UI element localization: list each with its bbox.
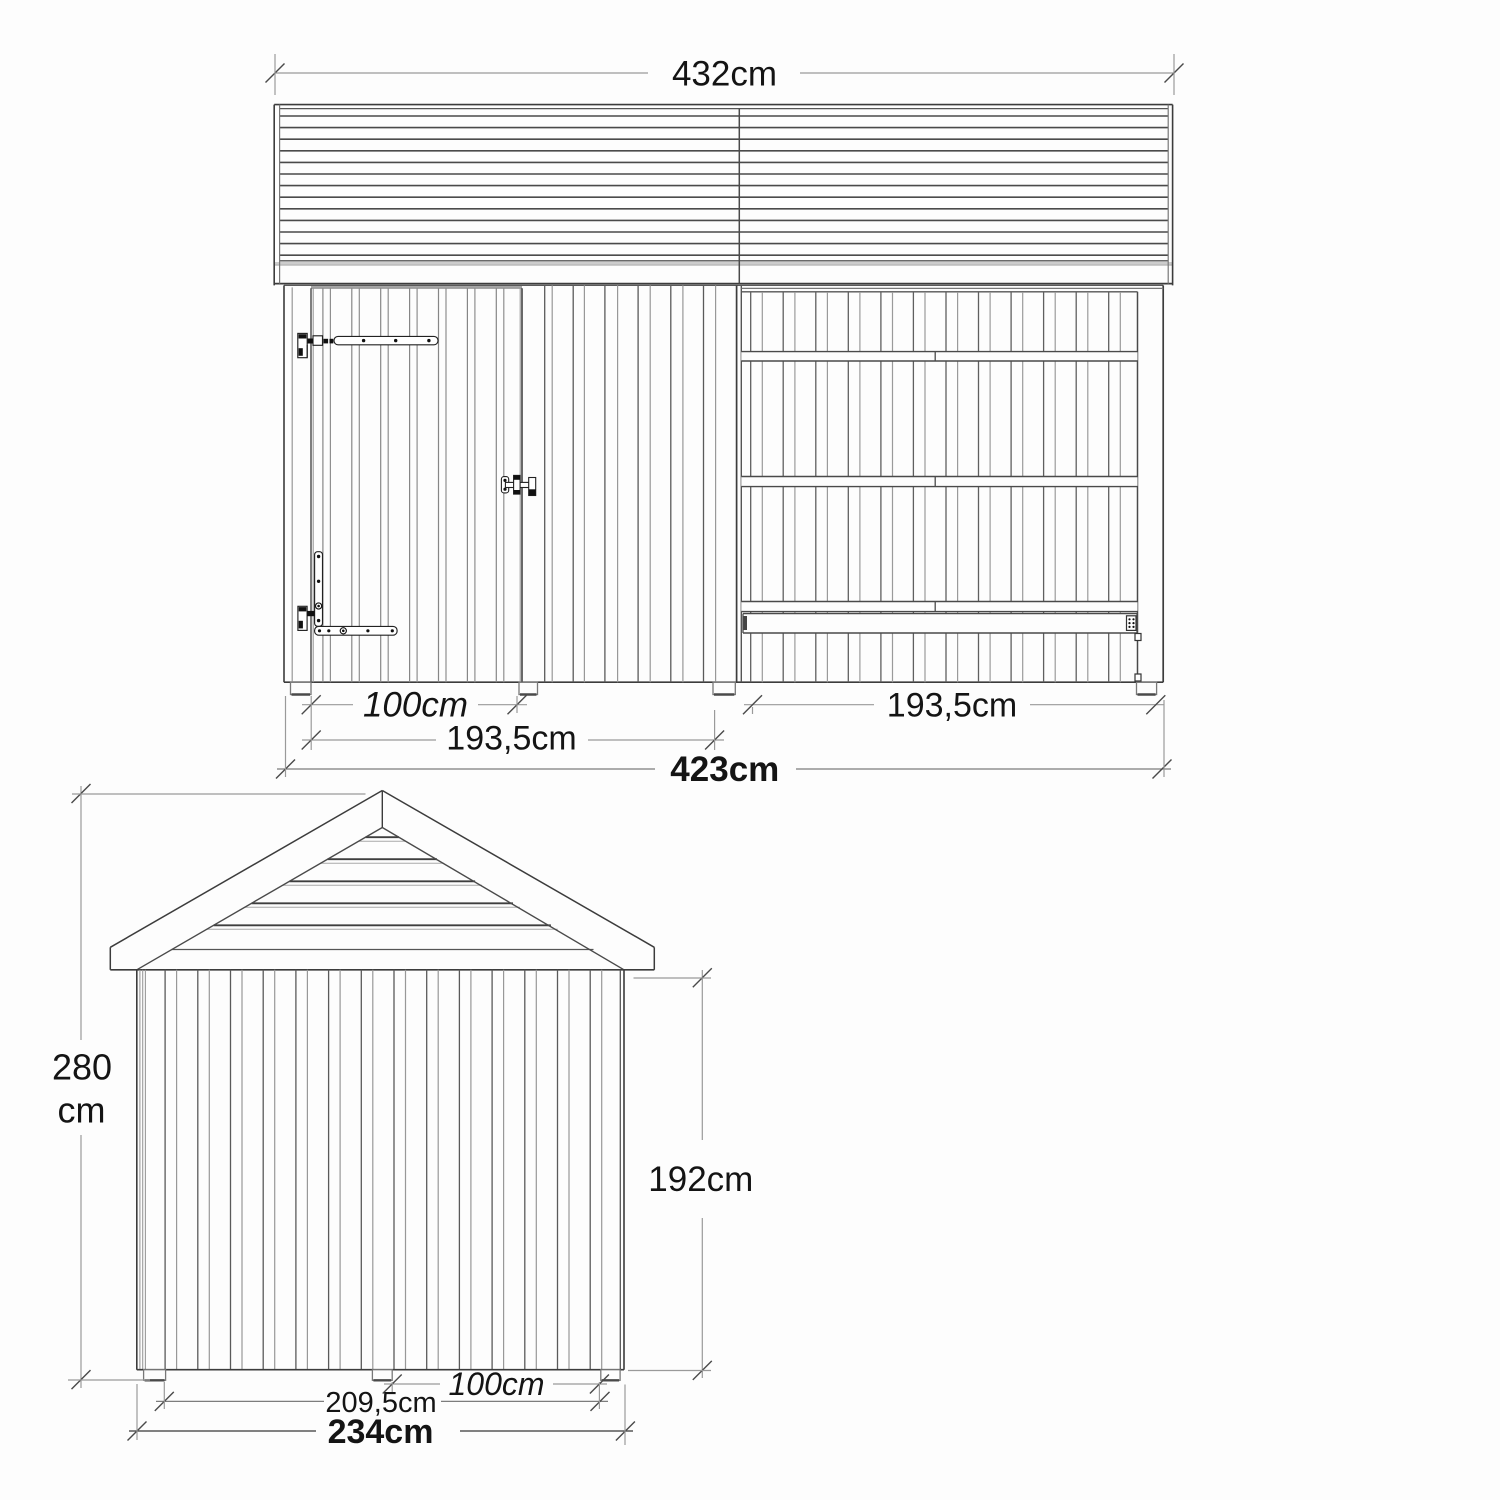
svg-text:423cm: 423cm (670, 750, 779, 789)
svg-text:432cm: 432cm (672, 55, 777, 94)
svg-text:100cm: 100cm (448, 1366, 544, 1402)
svg-text:234cm: 234cm (328, 1413, 434, 1451)
svg-text:cm: cm (58, 1090, 106, 1131)
svg-text:280: 280 (52, 1047, 112, 1088)
svg-text:192cm: 192cm (648, 1160, 753, 1199)
svg-text:193,5cm: 193,5cm (446, 720, 576, 758)
svg-text:193,5cm: 193,5cm (887, 687, 1017, 725)
